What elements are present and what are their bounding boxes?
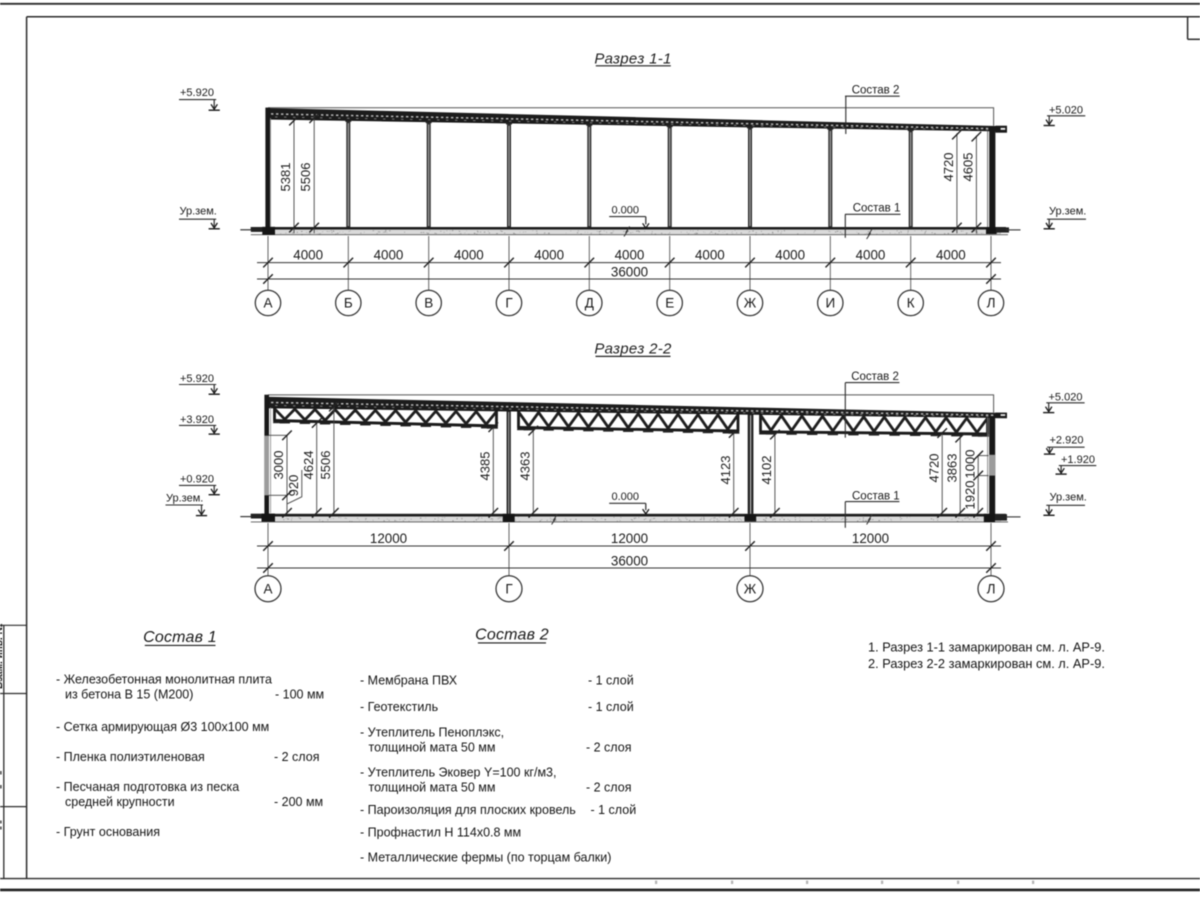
svg-text:+3.920: +3.920 [180,414,214,426]
svg-text:Д: Д [585,296,594,311]
svg-text:К: К [907,296,915,311]
svg-text:- Металлические фермы (по торц: - Металлические фермы (по торцам балки) [360,851,611,865]
svg-text:Ж: Ж [744,582,757,597]
svg-text:4605: 4605 [960,153,975,182]
svg-text:- 200 мм: - 200 мм [274,795,323,809]
svg-text:Г: Г [505,582,513,597]
svg-text:36000: 36000 [611,553,648,568]
svg-text:1. Разрез 1-1 замаркирован см.: 1. Разрез 1-1 замаркирован см. л. АР-9. [868,640,1105,655]
svg-text:12000: 12000 [370,531,407,546]
svg-text:0.000: 0.000 [612,205,640,217]
svg-text:Состав 2: Состав 2 [851,371,899,383]
svg-text:1000: 1000 [962,450,977,479]
svg-text:920: 920 [286,475,301,497]
svg-text:12000: 12000 [852,531,889,546]
svg-text:4000: 4000 [293,247,323,262]
svg-text:5506: 5506 [298,163,313,192]
svg-text:4720: 4720 [926,454,941,483]
svg-text:В: В [424,296,433,311]
svg-text:4720: 4720 [941,153,956,182]
svg-text:Л: Л [987,582,996,597]
svg-text:- Утеплитель Эковер Y=100 кг/м: - Утеплитель Эковер Y=100 кг/м3, [360,766,556,780]
svg-text:+5.920: +5.920 [180,87,214,99]
svg-text:- 2 слоя: - 2 слоя [586,781,631,795]
svg-text:+0.920: +0.920 [180,474,214,486]
svg-text:4000: 4000 [936,247,966,262]
svg-text:Г: Г [505,296,513,311]
svg-text:- Утеплитель Пеноплэкс,: - Утеплитель Пеноплэкс, [360,726,504,740]
svg-text:толщиной мата 50 мм: толщиной мата 50 мм [369,781,496,795]
svg-text:Ур.зем.: Ур.зем. [1050,491,1087,503]
svg-text:0.000: 0.000 [612,491,640,503]
svg-text:Е: Е [665,296,674,311]
svg-text:- Сетка армирующая Ø3 100х100: - Сетка армирующая Ø3 100х100 мм [56,720,269,734]
svg-text:4102: 4102 [759,456,774,485]
svg-text:Разрез 1-1: Разрез 1-1 [594,50,671,67]
svg-text:5381: 5381 [278,163,293,192]
svg-text:- Песчаная подготовка из песка: - Песчаная подготовка из песка [56,780,239,794]
svg-text:4000: 4000 [775,247,805,262]
svg-text:средней крупности: средней крупности [65,795,175,809]
svg-text:А: А [263,582,272,597]
svg-text:3863: 3863 [944,454,959,483]
svg-text:- 2 слоя: - 2 слоя [274,750,319,764]
svg-text:Ур.зем.: Ур.зем. [166,492,203,504]
svg-text:Состав 1: Состав 1 [853,202,901,214]
svg-text:+5.020: +5.020 [1049,104,1083,116]
svg-text:Состав 2: Состав 2 [852,85,900,97]
svg-text:Б: Б [344,296,353,311]
svg-text:- Пленка полиэтиленовая: - Пленка полиэтиленовая [56,750,205,764]
svg-text:Взам. инв. №: Взам. инв. № [0,623,5,689]
svg-text:2. Разрез 2-2 замаркирован см.: 2. Разрез 2-2 замаркирован см. л. АР-9. [868,656,1105,671]
svg-text:36000: 36000 [611,264,648,279]
svg-text:И: И [825,296,835,311]
svg-text:4000: 4000 [615,247,645,262]
svg-text:- Геотекстиль: - Геотекстиль [360,700,438,714]
svg-text:4000: 4000 [374,247,404,262]
svg-text:- Профнастил Н 114х0.8 мм: - Профнастил Н 114х0.8 мм [360,826,521,840]
svg-text:- Пароизоляция для плоских кро: - Пароизоляция для плоских кровель [360,803,576,817]
svg-text:4000: 4000 [454,247,484,262]
svg-text:+5.920: +5.920 [180,373,214,385]
svg-text:4385: 4385 [477,452,492,481]
svg-text:4363: 4363 [517,452,532,481]
svg-text:- Железобетонная монолитная п: - Железобетонная монолитная плита [56,673,272,687]
svg-text:+5.020: +5.020 [1049,391,1083,403]
svg-text:3000: 3000 [271,451,286,480]
svg-text:Ур.зем.: Ур.зем. [1049,205,1086,217]
svg-text:А: А [263,296,272,311]
svg-text:толщиной мата 50 мм: толщиной мата 50 мм [369,741,496,755]
svg-text:Ж: Ж [744,296,757,311]
svg-text:- Грунт основания: - Грунт основания [56,825,160,839]
svg-text:+1.920: +1.920 [1061,454,1095,466]
svg-text:4000: 4000 [695,247,725,262]
svg-text:- 1 слой: - 1 слой [588,674,634,688]
svg-text:Состав 2: Состав 2 [475,627,549,644]
svg-text:- 2 слоя: - 2 слоя [586,741,631,755]
svg-text:- 100 мм: - 100 мм [275,688,324,702]
svg-text:Разрез 2-2: Разрез 2-2 [594,341,672,358]
svg-text:Л: Л [987,296,996,311]
svg-text:- 1 слой: - 1 слой [591,803,637,817]
svg-text:4624: 4624 [301,451,316,480]
svg-text:Ур.зем.: Ур.зем. [180,205,217,217]
svg-text:12000: 12000 [611,531,648,546]
svg-text:+2.920: +2.920 [1050,434,1084,446]
svg-text:1920: 1920 [962,481,977,510]
svg-text:- 1 слой: - 1 слой [588,700,634,714]
svg-text:4123: 4123 [718,456,733,485]
svg-text:4000: 4000 [534,247,564,262]
svg-text:4000: 4000 [856,247,886,262]
svg-text:- Мембрана ПВХ: - Мембрана ПВХ [360,674,458,688]
svg-text:из бетона В 15 (М200): из бетона В 15 (М200) [65,688,193,702]
svg-text:5506: 5506 [318,451,333,480]
svg-text:Состав 1: Состав 1 [852,490,900,502]
svg-text:Состав 1: Состав 1 [143,629,217,646]
